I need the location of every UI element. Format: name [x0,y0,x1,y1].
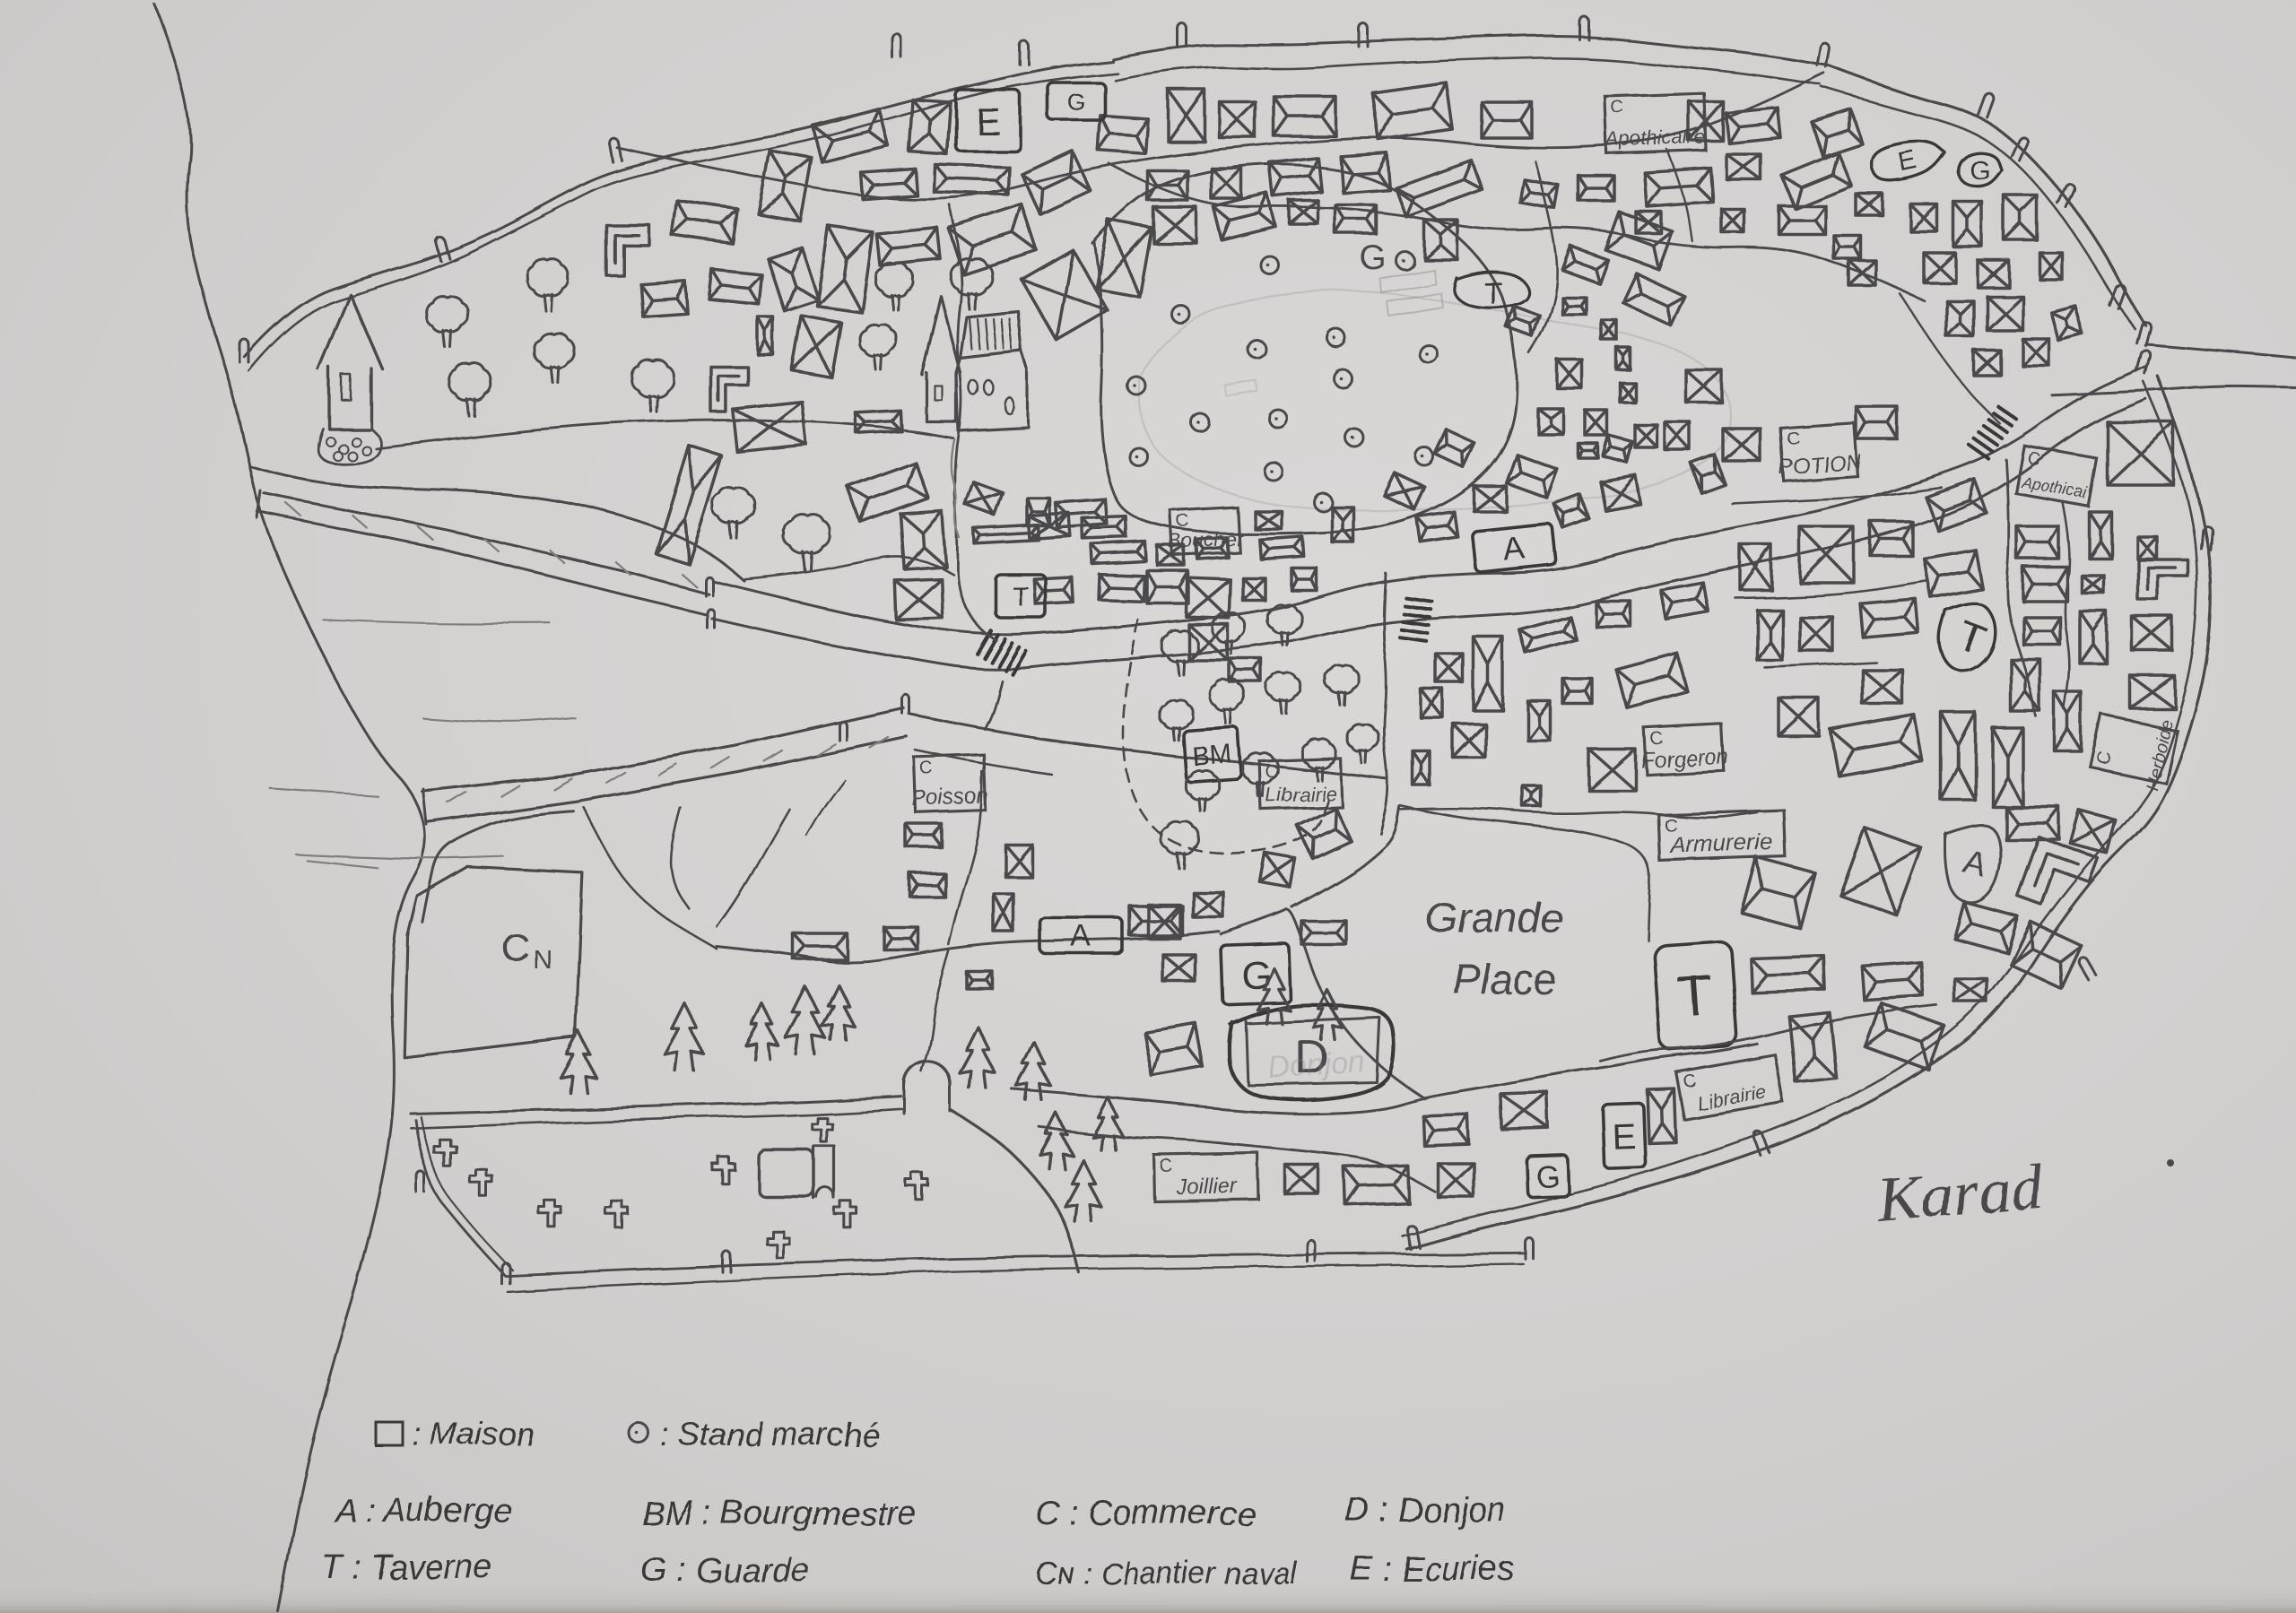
svg-text:A: A [1072,920,1092,954]
svg-text:T: T [1013,583,1029,612]
svg-text:Armurerie: Armurerie [1669,828,1774,859]
svg-text:: Stand marché: : Stand marché [660,1416,879,1453]
svg-text:Librairie: Librairie [1265,782,1336,807]
svg-text:G: G [1067,88,1085,115]
svg-text:C: C [1611,98,1624,117]
svg-text:T : Taverne: T : Taverne [321,1548,492,1586]
svg-text:Poisson: Poisson [911,785,988,811]
svg-text:Donjon: Donjon [1266,1044,1365,1084]
svg-text:G: G [1360,239,1387,277]
svg-text:C: C [919,759,933,778]
svg-text:BM : Bourgmestre: BM : Bourgmestre [641,1495,916,1532]
svg-text:T: T [1675,963,1715,1030]
svg-text:Forgeron: Forgeron [1639,743,1728,772]
svg-text:Boucher: Boucher [1169,527,1245,553]
svg-text:BM: BM [1190,739,1232,771]
svg-text:N: N [533,945,552,975]
svg-text:: Maison: : Maison [413,1416,535,1453]
svg-text:G: G [1535,1159,1560,1194]
svg-text:D : Donjon: D : Donjon [1345,1492,1507,1530]
svg-text:C: C [501,926,530,970]
svg-text:Place: Place [1453,956,1556,1002]
svg-text:C: C [1786,429,1800,449]
svg-text:E : Ecuries: E : Ecuries [1350,1550,1515,1588]
svg-text:C : Commerce: C : Commerce [1035,1495,1255,1532]
svg-text:A: A [1501,529,1526,568]
svg-text:E: E [975,100,1000,142]
svg-text:Apothicaire: Apothicaire [1605,126,1706,152]
svg-text:Grande: Grande [1426,895,1563,941]
svg-text:G: G [1970,157,1990,186]
svg-text:A : Auberge: A : Auberge [333,1492,512,1530]
svg-text:Cɴ : Chantier naval: Cɴ : Chantier naval [1035,1557,1298,1591]
svg-text:G : Guarde: G : Guarde [641,1552,810,1590]
svg-text:C: C [1160,1157,1173,1176]
svg-text:C: C [1265,762,1278,782]
svg-text:C: C [1649,728,1664,749]
svg-text:Karad: Karad [1873,1149,2045,1236]
svg-text:T: T [1483,276,1502,310]
svg-text:E: E [1612,1117,1637,1158]
svg-text:Joillier: Joillier [1175,1174,1238,1199]
